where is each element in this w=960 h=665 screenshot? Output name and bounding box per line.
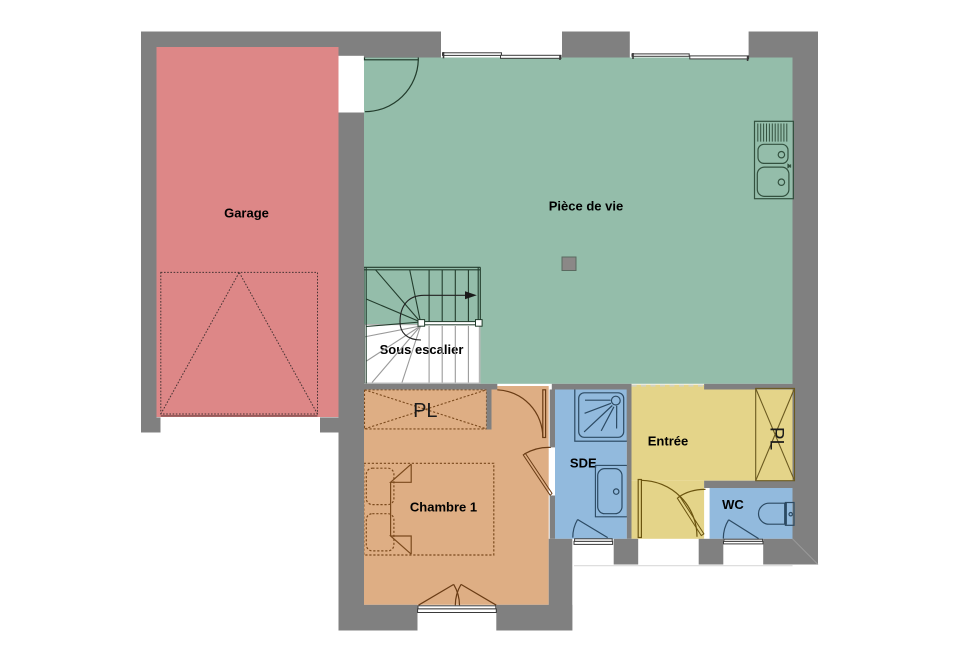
svg-text:Chambre 1: Chambre 1: [410, 500, 477, 515]
svg-text:Pièce de vie: Pièce de vie: [549, 199, 623, 214]
svg-text:Entrée: Entrée: [648, 434, 688, 449]
svg-text:Garage: Garage: [224, 206, 269, 221]
svg-text:SDE: SDE: [570, 456, 597, 471]
svg-text:PL: PL: [765, 427, 786, 450]
svg-text:PL: PL: [413, 400, 437, 422]
svg-text:WC: WC: [722, 497, 744, 512]
